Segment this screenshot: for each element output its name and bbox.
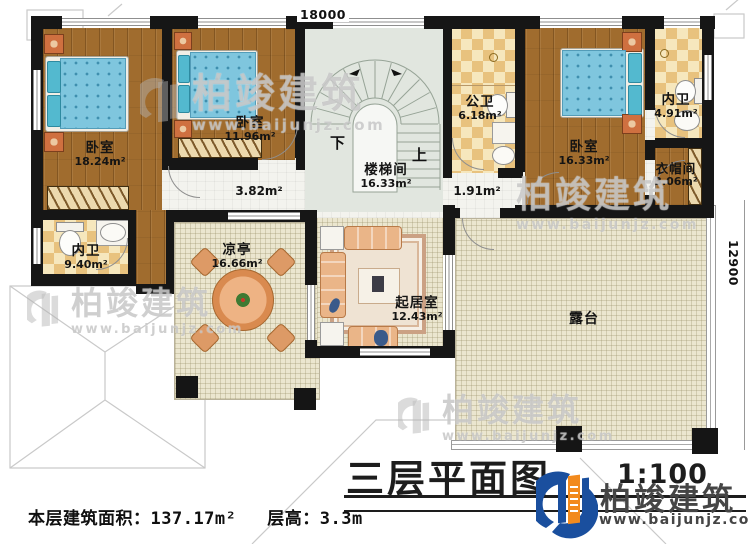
bed-pillow — [178, 55, 190, 83]
wall — [150, 16, 198, 29]
room-area: 18.24m² — [74, 156, 125, 168]
bed-pillow — [628, 53, 642, 83]
wall — [295, 16, 305, 158]
wall — [443, 16, 452, 173]
bed-mattress — [562, 50, 626, 116]
room-area: 16.66m² — [211, 258, 262, 270]
side-table — [320, 322, 344, 346]
wall — [296, 158, 305, 170]
nightstand — [622, 114, 642, 134]
washer-icon — [492, 122, 516, 144]
room-name: 卧室 — [235, 116, 264, 131]
wardrobe — [47, 186, 129, 210]
room-name: 起居室 — [395, 296, 439, 311]
window — [307, 285, 315, 340]
terrace-floor — [455, 218, 708, 442]
bedroom-1-corridor-floor — [136, 210, 166, 290]
window — [540, 18, 622, 26]
pavilion-column — [294, 388, 316, 410]
company-logo-url: www.baijunjz.com — [599, 512, 750, 528]
shower-divider — [450, 85, 515, 86]
room-label-bedroom-3: 卧室 16.33m² — [558, 140, 609, 167]
room-label-ensuite-top: 内卫 4.91m² — [654, 93, 697, 120]
terrace-column — [556, 426, 582, 452]
terrace-column — [692, 428, 718, 454]
nightstand — [44, 132, 64, 152]
room-area: 1.91m² — [453, 185, 500, 198]
wall — [136, 284, 174, 294]
window — [664, 18, 700, 26]
room-name: 公卫 — [465, 95, 494, 110]
nightstand — [622, 32, 642, 52]
bed-pillow — [47, 61, 61, 93]
wall — [645, 140, 655, 160]
stairs-up-label: 上 — [412, 144, 427, 165]
sink-icon — [492, 146, 515, 165]
floor-plan-canvas: 卧室 18.24m² 卧室 11.96m² 楼梯间 16.33m² 公卫 6.1… — [0, 0, 750, 544]
bed-mattress — [60, 58, 126, 129]
room-name: 内卫 — [71, 244, 100, 259]
bed-pillow — [628, 85, 642, 115]
bed-mattress — [190, 52, 256, 118]
room-label-cloakroom: 衣帽间 3.06m² — [654, 162, 697, 188]
table-plant-icon — [236, 293, 250, 307]
wall — [443, 330, 455, 358]
wall — [166, 210, 174, 290]
towel-hook-icon — [660, 49, 669, 58]
bed-pillow — [178, 85, 190, 113]
wall — [702, 16, 714, 206]
wall — [443, 208, 460, 218]
wall — [655, 138, 702, 148]
room-label-public-bath: 公卫 6.18m² — [458, 95, 501, 122]
window — [33, 228, 41, 264]
wall — [443, 168, 452, 178]
nightstand — [44, 34, 64, 54]
hall-area-label: 1.91m² — [453, 185, 500, 198]
room-area: 12.43m² — [391, 311, 442, 323]
room-area: 9.40m² — [64, 259, 107, 271]
towel-hook-icon — [489, 53, 498, 62]
bed-pillow — [47, 95, 61, 127]
room-area: 4.91m² — [654, 108, 697, 120]
dimension-line-right — [744, 200, 745, 450]
storey-height-label: 层高： — [267, 509, 320, 529]
company-logo-icon — [536, 466, 598, 542]
nightstand — [174, 32, 192, 50]
wall — [162, 16, 172, 160]
room-area: 6.18m² — [458, 110, 501, 122]
wall — [645, 195, 655, 205]
window — [704, 55, 712, 100]
hall-area-label: 3.82m² — [235, 185, 282, 198]
room-label-stairwell: 楼梯间 16.33m² — [360, 163, 411, 190]
wall — [31, 274, 136, 286]
window — [360, 348, 430, 356]
wall — [622, 16, 664, 29]
room-name: 露台 — [569, 312, 599, 328]
dimension-top: 18000 — [297, 7, 349, 22]
side-table — [320, 226, 344, 250]
room-name: 楼梯间 — [364, 163, 408, 178]
footer-stats: 本层建筑面积：137.17m² 层高：3.3m — [28, 504, 363, 529]
wall — [515, 205, 714, 218]
window — [33, 70, 41, 130]
sofa — [344, 226, 402, 250]
room-area: 16.33m² — [558, 155, 609, 167]
room-area: 11.96m² — [224, 131, 275, 143]
stairs-down-label: 下 — [330, 132, 345, 153]
floor-area-value: 137.17m² — [151, 509, 237, 529]
wall — [31, 210, 136, 220]
room-label-terrace: 露台 — [569, 312, 599, 328]
wall — [500, 208, 515, 218]
room-area: 3.82m² — [235, 185, 282, 198]
window — [198, 18, 286, 26]
person-figure — [374, 330, 388, 346]
room-name: 卧室 — [85, 141, 114, 156]
plan-title: 三层平面图 — [346, 448, 551, 503]
room-label-ensuite-left: 内卫 9.40m² — [64, 244, 107, 271]
window — [445, 255, 453, 330]
nightstand — [174, 120, 192, 138]
dimension-right: 12900 — [726, 240, 741, 286]
room-label-living-room: 起居室 12.43m² — [391, 296, 442, 323]
room-name: 内卫 — [661, 93, 690, 108]
room-area: 3.06m² — [654, 176, 697, 188]
wall — [305, 210, 317, 285]
room-label-bedroom-2: 卧室 11.96m² — [224, 116, 275, 143]
storey-height-value: 3.3m — [320, 509, 363, 529]
window — [228, 212, 300, 220]
room-name: 凉亭 — [222, 243, 251, 258]
floor-area-label: 本层建筑面积： — [28, 509, 151, 529]
room-area: 16.33m² — [360, 178, 411, 190]
coffee-table-item — [372, 276, 384, 292]
window — [62, 18, 150, 26]
wall — [515, 16, 525, 172]
pavilion-column — [176, 376, 198, 398]
room-name: 卧室 — [569, 140, 598, 155]
wall — [128, 220, 136, 274]
room-label-bedroom-1: 卧室 18.24m² — [74, 141, 125, 168]
room-name: 衣帽间 — [656, 162, 697, 176]
room-label-pavilion: 凉亭 16.66m² — [211, 243, 262, 270]
terrace-railing-right — [706, 205, 716, 451]
